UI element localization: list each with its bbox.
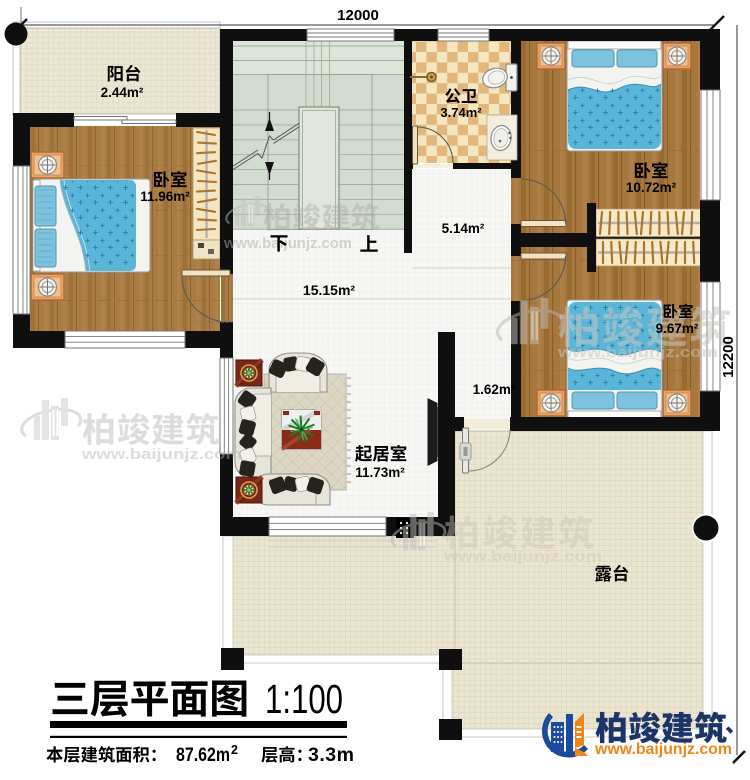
svg-text:2.44m²: 2.44m² xyxy=(101,85,144,100)
svg-text:www.baijunjz.com: www.baijunjz.com xyxy=(223,236,352,252)
svg-text:12000: 12000 xyxy=(337,7,379,24)
svg-text:www.baijunjz.com: www.baijunjz.com xyxy=(81,446,242,463)
svg-text:9.67m²: 9.67m² xyxy=(656,321,699,336)
svg-text:15.15m²: 15.15m² xyxy=(303,282,355,298)
svg-text:10.72m²: 10.72m² xyxy=(626,180,677,195)
svg-text:3.74m²: 3.74m² xyxy=(440,105,482,120)
svg-text:3.3m: 3.3m xyxy=(308,744,354,766)
svg-text:11.96m²: 11.96m² xyxy=(140,189,190,204)
svg-text:11.73m²: 11.73m² xyxy=(355,465,405,480)
svg-text:5.14m²: 5.14m² xyxy=(442,221,485,236)
svg-text:www.baijunjz.com: www.baijunjz.com xyxy=(443,549,602,565)
svg-text:2: 2 xyxy=(231,743,238,757)
svg-text:www.baijunjz.com: www.baijunjz.com xyxy=(594,741,732,758)
svg-text:87.62m: 87.62m xyxy=(176,744,230,766)
svg-text:www.baijunjz.com: www.baijunjz.com xyxy=(557,344,718,361)
svg-text:1.62m²: 1.62m² xyxy=(473,382,516,397)
svg-text:12200: 12200 xyxy=(720,336,737,378)
svg-text:1:100: 1:100 xyxy=(265,676,343,722)
